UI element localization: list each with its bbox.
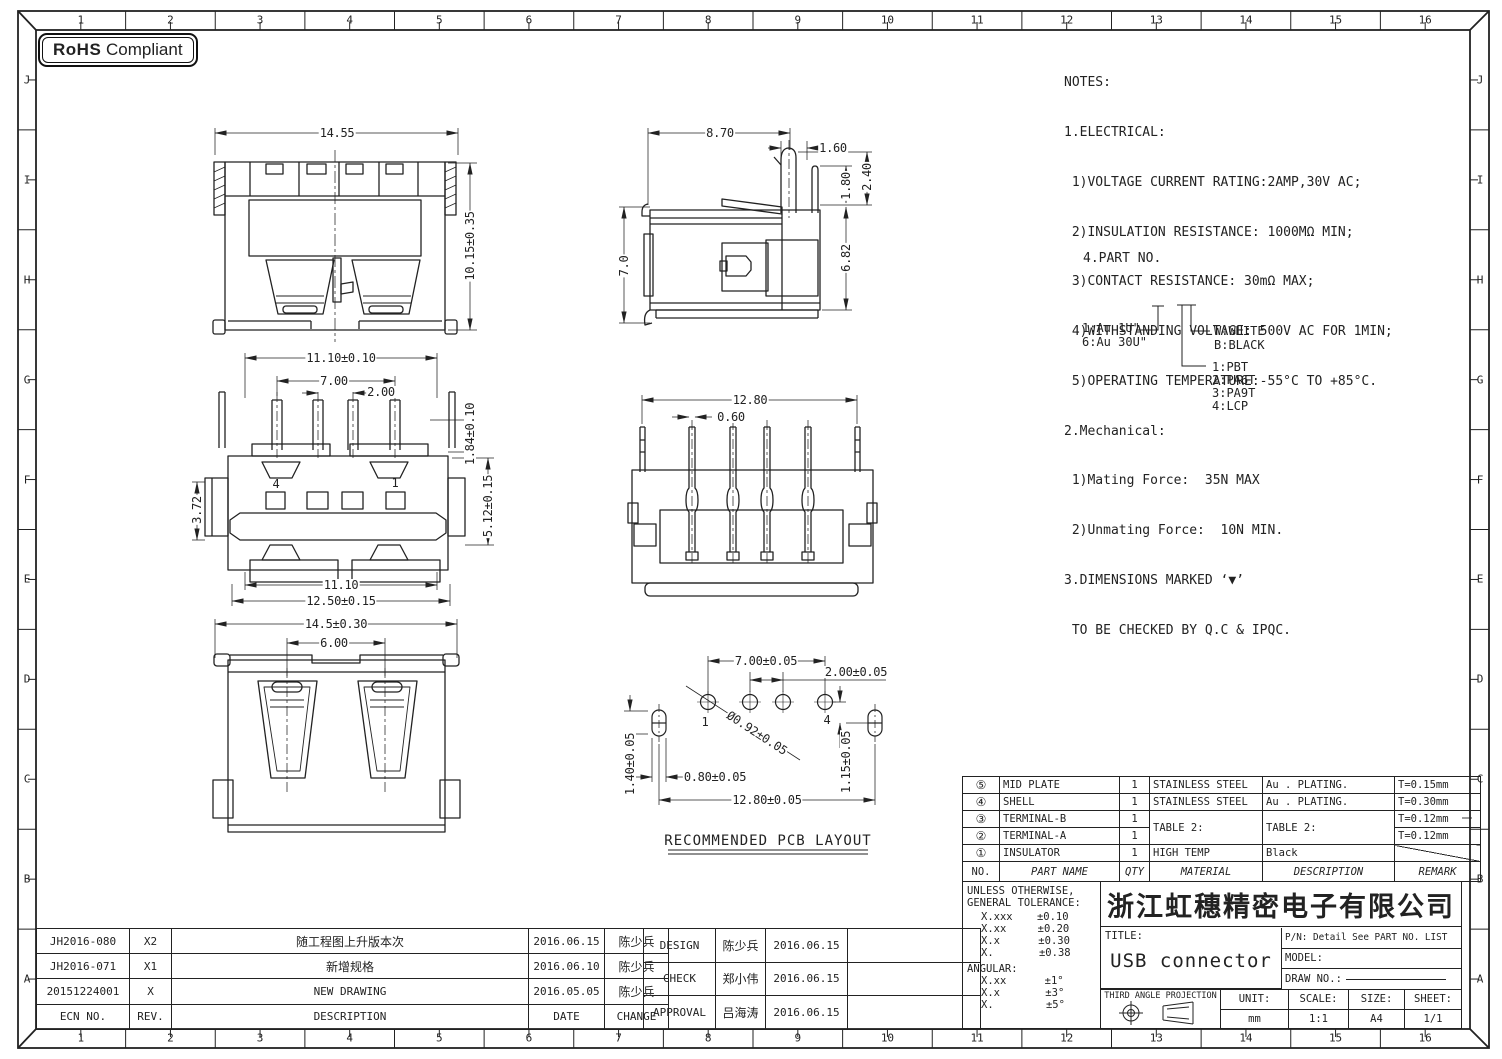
dim-label: 11.10±0.10 xyxy=(305,352,376,364)
bom-remark-slash xyxy=(1395,845,1481,862)
ruler-number-bottom: 9 xyxy=(795,1032,802,1045)
tree-plating-2: 6:Au 30U" xyxy=(1082,336,1147,348)
ruler-letter-right: H xyxy=(1477,273,1484,286)
dim-label: 1.40±0.05 xyxy=(624,732,636,796)
rev-date: 2016.06.10 xyxy=(529,954,605,979)
bom-header-no: NO. xyxy=(963,862,1000,882)
ruler-number-top: 15 xyxy=(1329,14,1342,27)
ruler-letter-right: I xyxy=(1477,173,1484,186)
note-line: 2.Mechanical: xyxy=(1064,424,1393,441)
unit-value: mm xyxy=(1221,1010,1288,1029)
tolerance-row: X.xxx ±0.10 xyxy=(981,911,1100,923)
bom-header-description: DESCRIPTION xyxy=(1263,862,1395,882)
note-line: 1.ELECTRICAL: xyxy=(1064,125,1393,142)
bom-material-merged: TABLE 2: xyxy=(1150,811,1263,845)
ruler-number-top: 10 xyxy=(881,14,894,27)
bom-material: STAINLESS STEEL xyxy=(1150,794,1263,811)
ruler-number-bottom: 15 xyxy=(1329,1032,1342,1045)
dim-label: 7.0 xyxy=(618,255,630,278)
view-front-dims xyxy=(215,128,477,342)
angular-title: ANGULAR: xyxy=(967,963,1100,975)
ruler-number-bottom: 6 xyxy=(526,1032,533,1045)
tree-material-pbt: 1:PBT xyxy=(1212,361,1248,373)
tol-val: ±3° xyxy=(1045,987,1064,999)
ruler-number-top: 12 xyxy=(1060,14,1073,27)
tol-val: ±0.30 xyxy=(1038,935,1070,947)
ruler-number-bottom: 16 xyxy=(1419,1032,1432,1045)
tol-val: ±1° xyxy=(1045,975,1064,987)
bom-qty: 1 xyxy=(1120,828,1150,845)
draw-no-row: DRAW NO.: xyxy=(1282,969,1461,989)
note-line: NOTES: xyxy=(1064,75,1393,92)
pn-block: P/N: Detail See PART NO. LIST MODEL: DRA… xyxy=(1282,928,1461,989)
tolerance-row: X.xx ±0.20 xyxy=(981,923,1100,935)
unit-cell: UNIT: mm xyxy=(1221,989,1289,1028)
pcb-layout-caption: RECOMMENDED PCB LAYOUT xyxy=(664,833,871,849)
scale-label: SCALE: xyxy=(1289,990,1348,1010)
note-line: TO BE CHECKED BY Q.C & IPQC. xyxy=(1064,623,1393,640)
dim-label: 10.15±0.35 xyxy=(464,210,476,281)
dim-label: 14.55 xyxy=(319,127,356,139)
ruler-number-top: 1 xyxy=(78,14,85,27)
ruler-letter-left: A xyxy=(24,973,31,986)
approval-empty xyxy=(848,996,981,1030)
ruler-number-top: 11 xyxy=(970,14,983,27)
dim-label: 7.00±0.05 xyxy=(734,655,798,667)
size-label: SIZE: xyxy=(1349,990,1404,1010)
approval-date: 2016.06.15 xyxy=(766,996,848,1030)
bom-no: ⑤ xyxy=(963,777,1000,794)
note-line: 1)Mating Force: 35N MAX xyxy=(1064,473,1393,490)
dim-label: 3.72 xyxy=(191,495,203,525)
drawing-title: USB connector xyxy=(1101,950,1281,972)
bom-no: ① xyxy=(963,845,1000,862)
view-top-dims xyxy=(192,353,494,606)
bom-header-qty: QTY xyxy=(1120,862,1150,882)
table-row: ⑤ MID PLATE 1 STAINLESS STEEL Au . PLATI… xyxy=(963,777,1481,794)
third-angle-projection-icon xyxy=(1101,1001,1221,1025)
revision-table: JH2016-080 X2 随工程图上升版本次 2016.06.15 陈少兵 J… xyxy=(36,928,669,1030)
ruler-letter-left: D xyxy=(24,673,31,686)
view-rear xyxy=(628,427,877,596)
ruler-number-bottom: 11 xyxy=(970,1032,983,1045)
bom-material: HIGH TEMP xyxy=(1150,845,1263,862)
ruler-letter-right: G xyxy=(1477,373,1484,386)
bom-remark: T=0.15mm xyxy=(1395,777,1481,794)
note-line: 3)CONTACT RESISTANCE: 30mΩ MAX; xyxy=(1064,274,1393,291)
tolerance-row: X.xx ±1° xyxy=(981,975,1100,987)
dim-label: 8.70 xyxy=(705,127,735,139)
rohs-strong: RoHS xyxy=(53,40,101,59)
part-no-heading: 4.PART NO. xyxy=(1083,252,1161,265)
rev-description: NEW DRAWING xyxy=(172,979,529,1004)
tree-color-black: B:BLACK xyxy=(1214,339,1265,351)
bom-no: ④ xyxy=(963,794,1000,811)
dim-label: 6.82 xyxy=(840,243,852,273)
tol-key: X.xx xyxy=(981,975,1006,987)
bom-description: Au . PLATING. xyxy=(1263,794,1395,811)
bom-header-part-name: PART NAME xyxy=(1000,862,1120,882)
tree-color-white: W:WHITE xyxy=(1214,325,1265,337)
sheet-cell: SHEET: 1/1 xyxy=(1405,989,1461,1028)
bom-part-name: TERMINAL-B xyxy=(1000,811,1120,828)
table-row: ① INSULATOR 1 HIGH TEMP Black xyxy=(963,845,1481,862)
ruler-number-top: 9 xyxy=(795,14,802,27)
view-side xyxy=(642,148,820,325)
ruler-number-bottom: 13 xyxy=(1150,1032,1163,1045)
ruler-letter-left: C xyxy=(24,773,31,786)
dim-label: 12.50±0.15 xyxy=(305,595,376,607)
ruler-number-top: 16 xyxy=(1419,14,1432,27)
bom-header-material: MATERIAL xyxy=(1150,862,1263,882)
rev-header-ecn: ECN NO. xyxy=(37,1004,130,1029)
tol-key: X. xyxy=(981,947,994,959)
note-line: 3.DIMENSIONS MARKED ‘▼’ xyxy=(1064,573,1393,590)
dim-label: 1.84±0.10 xyxy=(464,402,476,466)
ruler-letter-left: G xyxy=(24,373,31,386)
size-value: A4 xyxy=(1349,1010,1404,1029)
bom-part-name: TERMINAL-A xyxy=(1000,828,1120,845)
approval-date: 2016.06.15 xyxy=(766,962,848,996)
rev-ecn: 20151224001 xyxy=(37,979,130,1004)
dim-label: 11.10 xyxy=(323,579,360,591)
dim-label: 1.60 xyxy=(818,142,848,154)
tol-key: X.x xyxy=(981,935,1000,947)
tol-val: ±0.38 xyxy=(1039,947,1071,959)
ruler-number-bottom: 4 xyxy=(346,1032,353,1045)
rev-description: 新增规格 xyxy=(172,954,529,979)
tol-val: ±0.20 xyxy=(1038,923,1070,935)
ruler-letter-left: I xyxy=(24,173,31,186)
tol-val: ±0.10 xyxy=(1037,911,1069,923)
note-line: 2)INSULATION RESISTANCE: 1000MΩ MIN; xyxy=(1064,225,1393,242)
table-header-row: ECN NO. REV. DESCRIPTION DATE CHANGE xyxy=(37,1004,669,1029)
ruler-number-bottom: 5 xyxy=(436,1032,443,1045)
tolerance-panel: UNLESS OTHERWISE, GENERAL TOLERANCE: X.x… xyxy=(963,882,1101,1028)
view-side-dims xyxy=(619,128,872,323)
bom-qty: 1 xyxy=(1120,777,1150,794)
ruler-number-top: 13 xyxy=(1150,14,1163,27)
tol-val: ±5° xyxy=(1046,999,1065,1011)
tol-key: X.xx xyxy=(981,923,1006,935)
table-row: CHECK 郑小伟 2016.06.15 xyxy=(644,962,981,996)
tolerance-title-1: UNLESS OTHERWISE, xyxy=(967,885,1100,897)
rev-ecn: JH2016-071 xyxy=(37,954,130,979)
bom-material: STAINLESS STEEL xyxy=(1150,777,1263,794)
tree-material-lcp: 4:LCP xyxy=(1212,400,1248,412)
tolerance-row: X.x ±3° xyxy=(981,987,1100,999)
ruler-number-top: 8 xyxy=(705,14,712,27)
sheet-value: 1/1 xyxy=(1405,1010,1461,1029)
table-row: DESIGN 陈少兵 2016.06.15 xyxy=(644,929,981,963)
bom-qty: 1 xyxy=(1120,811,1150,828)
notes-block: NOTES: 1.ELECTRICAL: 1)VOLTAGE CURRENT R… xyxy=(1064,42,1393,673)
rev-description: 随工程图上升版本次 xyxy=(172,929,529,954)
scale-cell: SCALE: 1:1 xyxy=(1289,989,1349,1028)
rohs-badge: RoHS Compliant xyxy=(38,33,198,67)
ruler-number-bottom: 1 xyxy=(78,1032,85,1045)
ruler-number-bottom: 7 xyxy=(615,1032,622,1045)
approval-table: DESIGN 陈少兵 2016.06.15 CHECK 郑小伟 2016.06.… xyxy=(643,928,981,1030)
bom-no: ② xyxy=(963,828,1000,845)
bom-part-name: MID PLATE xyxy=(1000,777,1120,794)
projection-label: THIRD ANGLE PROJECTION xyxy=(1101,991,1220,1001)
approval-role: CHECK xyxy=(644,962,716,996)
table-header-row: NO. PART NAME QTY MATERIAL DESCRIPTION R… xyxy=(963,862,1481,882)
title-area: TITLE: USB connector xyxy=(1101,928,1282,989)
tol-key: X.x xyxy=(981,987,1000,999)
ruler-number-top: 7 xyxy=(615,14,622,27)
approval-role: APPROVAL xyxy=(644,996,716,1030)
tolerance-row: X.x ±0.30 xyxy=(981,935,1100,947)
ruler-letter-right: E xyxy=(1477,573,1484,586)
note-line: 2)Unmating Force: 10N MIN. xyxy=(1064,523,1393,540)
bom-part-name: SHELL xyxy=(1000,794,1120,811)
dim-label: 0.60 xyxy=(716,411,746,423)
dim-label: 12.80±0.05 xyxy=(731,794,802,806)
part-number-note: P/N: Detail See PART NO. LIST xyxy=(1282,928,1461,949)
bom-part-name: INSULATOR xyxy=(1000,845,1120,862)
tree-plating-1: 1:Au 1U" xyxy=(1082,322,1140,334)
dim-label: 2.00±0.05 xyxy=(824,666,888,678)
ruler-letter-right: F xyxy=(1477,473,1484,486)
dim-label: 2.00 xyxy=(366,386,396,398)
bom-header-remark: REMARK xyxy=(1395,862,1481,882)
rohs-text: Compliant xyxy=(106,40,183,59)
dim-label: 12.80 xyxy=(732,394,769,406)
table-row: APPROVAL 吕海涛 2016.06.15 xyxy=(644,996,981,1030)
ruler-number-bottom: 14 xyxy=(1239,1032,1252,1045)
model-label: MODEL: xyxy=(1282,949,1461,969)
projection-box: THIRD ANGLE PROJECTION xyxy=(1101,989,1221,1028)
approval-date: 2016.06.15 xyxy=(766,929,848,963)
ruler-letter-right: A xyxy=(1477,973,1484,986)
approval-name: 吕海涛 xyxy=(716,996,766,1030)
table-row: ④ SHELL 1 STAINLESS STEEL Au . PLATING. … xyxy=(963,794,1481,811)
view-bottom xyxy=(213,654,460,832)
ruler-letter-left: J xyxy=(24,73,31,86)
draw-no-blank xyxy=(1346,979,1446,980)
approval-role: DESIGN xyxy=(644,929,716,963)
ruler-letter-left: B xyxy=(24,873,31,886)
approval-empty xyxy=(848,929,981,963)
rev-rev: X xyxy=(130,979,172,1004)
size-cell: SIZE: A4 xyxy=(1349,989,1405,1028)
tolerance-row: X. ±5° xyxy=(981,999,1100,1011)
bom-description: Au . PLATING. xyxy=(1263,777,1395,794)
dim-label: 2.40 xyxy=(861,162,873,192)
tol-key: X.xxx xyxy=(981,911,1013,923)
dim-label: 14.5±0.30 xyxy=(304,618,368,630)
dim-label: 1.15±0.05 xyxy=(840,730,852,794)
rev-header-date: DATE xyxy=(529,1004,605,1029)
bom-remark: T=0.30mm xyxy=(1395,794,1481,811)
ruler-number-bottom: 10 xyxy=(881,1032,894,1045)
unit-label: UNIT: xyxy=(1221,990,1288,1010)
dim-label: 0.80±0.05 xyxy=(683,771,747,783)
ruler-number-bottom: 8 xyxy=(705,1032,712,1045)
draw-no-label: DRAW NO.: xyxy=(1285,973,1342,985)
rev-date: 2016.06.15 xyxy=(529,929,605,954)
rev-date: 2016.05.05 xyxy=(529,979,605,1004)
pin-label-4: 4 xyxy=(272,478,281,490)
ruler-number-bottom: 3 xyxy=(257,1032,264,1045)
bom-description: Black xyxy=(1263,845,1395,862)
approval-empty xyxy=(848,962,981,996)
approval-name: 郑小伟 xyxy=(716,962,766,996)
tolerance-row: X. ±0.38 xyxy=(981,947,1100,959)
ruler-number-top: 6 xyxy=(526,14,533,27)
ruler-letter-left: H xyxy=(24,273,31,286)
rev-header-description: DESCRIPTION xyxy=(172,1004,529,1029)
tree-material-pa9t: 3:PA9T xyxy=(1212,387,1255,399)
ruler-letter-right: D xyxy=(1477,673,1484,686)
title-block: UNLESS OTHERWISE, GENERAL TOLERANCE: X.x… xyxy=(962,881,1462,1029)
ruler-number-bottom: 2 xyxy=(167,1032,174,1045)
ruler-number-top: 3 xyxy=(257,14,264,27)
ruler-number-top: 2 xyxy=(167,14,174,27)
bom-qty: 1 xyxy=(1120,845,1150,862)
bom-table: ⑤ MID PLATE 1 STAINLESS STEEL Au . PLATI… xyxy=(962,776,1481,882)
drawing-sheet: 1122334455667788991010111112121313141415… xyxy=(0,0,1502,1059)
rev-rev: X2 xyxy=(130,929,172,954)
bom-remark: T=0.12mm xyxy=(1395,811,1481,828)
ruler-letter-right: J xyxy=(1477,73,1484,86)
view-top xyxy=(205,392,465,582)
sheet-label: SHEET: xyxy=(1405,990,1461,1010)
bom-qty: 1 xyxy=(1120,794,1150,811)
scale-value: 1:1 xyxy=(1289,1010,1348,1029)
dim-label: 7.00 xyxy=(319,375,349,387)
pad-label-4: 4 xyxy=(823,714,832,726)
dim-label: 1.80 xyxy=(840,171,852,201)
ruler-number-top: 5 xyxy=(436,14,443,27)
bom-description-merged: TABLE 2: xyxy=(1263,811,1395,845)
rev-header-rev: REV. xyxy=(130,1004,172,1029)
title-label: TITLE: xyxy=(1105,930,1281,942)
view-rear-dims xyxy=(642,395,857,565)
tol-key: X. xyxy=(981,999,994,1011)
company-name: 浙江虹穗精密电子有限公司 xyxy=(1101,882,1461,927)
dim-label: 6.00 xyxy=(319,637,349,649)
pad-label-1: 1 xyxy=(701,716,710,728)
pin-label-1: 1 xyxy=(391,477,400,489)
rev-rev: X1 xyxy=(130,954,172,979)
approval-name: 陈少兵 xyxy=(716,929,766,963)
note-line: 1)VOLTAGE CURRENT RATING:2AMP,30V AC; xyxy=(1064,175,1393,192)
ruler-number-top: 14 xyxy=(1239,14,1252,27)
ruler-letter-left: E xyxy=(24,573,31,586)
table-row: JH2016-080 X2 随工程图上升版本次 2016.06.15 陈少兵 xyxy=(37,929,669,954)
bom-no: ③ xyxy=(963,811,1000,828)
tolerance-title-2: GENERAL TOLERANCE: xyxy=(967,897,1100,909)
table-row: JH2016-071 X1 新增规格 2016.06.10 陈少兵 xyxy=(37,954,669,979)
rev-ecn: JH2016-080 xyxy=(37,929,130,954)
ruler-number-bottom: 12 xyxy=(1060,1032,1073,1045)
table-row: 20151224001 X NEW DRAWING 2016.05.05 陈少兵 xyxy=(37,979,669,1004)
tree-material-pa6t: 2:PA6T xyxy=(1212,374,1255,386)
bom-remark: T=0.12mm xyxy=(1395,828,1481,845)
dim-label: 5.12±0.15 xyxy=(482,474,494,538)
ruler-letter-left: F xyxy=(24,473,31,486)
ruler-number-top: 4 xyxy=(346,14,353,27)
table-row: ③ TERMINAL-B 1 TABLE 2: TABLE 2: T=0.12m… xyxy=(963,811,1481,828)
